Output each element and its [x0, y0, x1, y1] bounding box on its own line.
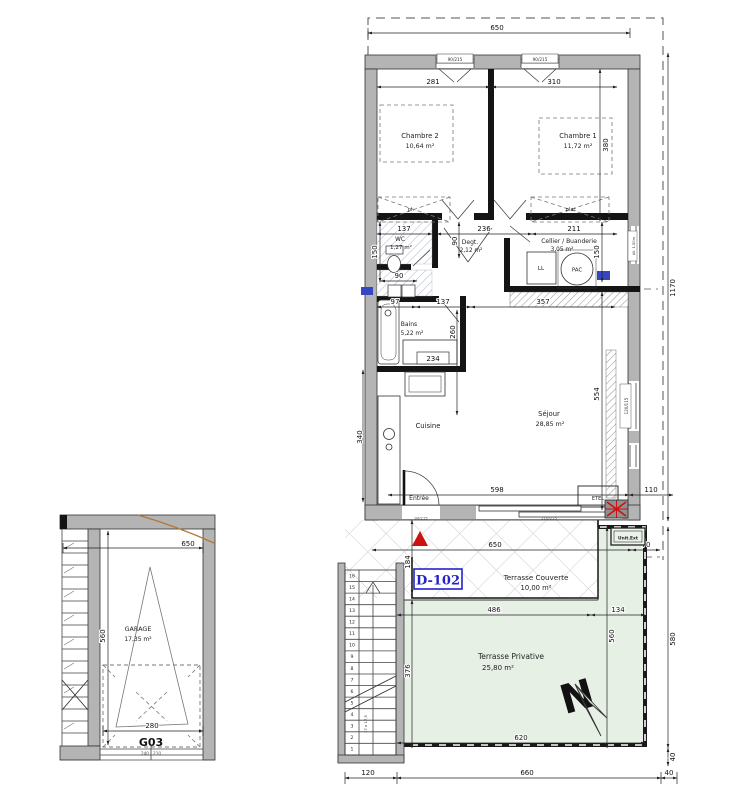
dim-tp-wa: 486: [487, 606, 501, 614]
main-stairs: 16 15 14 13 12 11 10 9 8 7 6 5 4 3 2 1 1…: [338, 563, 404, 763]
stair-step: 4: [351, 712, 354, 718]
label-etel: ETEL: [592, 496, 604, 502]
door-swing-chambre2: [442, 200, 474, 219]
dim-ch2-w: 281: [426, 78, 439, 86]
stair-step: 6: [351, 689, 354, 695]
room-label-bains: Bains: [401, 321, 417, 328]
dim-tp-bottom: 620: [514, 734, 527, 742]
room-area-wc: 1,27 m²: [390, 244, 412, 251]
unit-id-badge: D-102: [414, 569, 462, 589]
dim-vanity: 234: [426, 355, 440, 363]
garage-id-label: G03: [139, 736, 163, 749]
label-cellier-window: All. 1.50m: [632, 236, 636, 255]
dim-cuisine-h: 340: [356, 430, 364, 443]
stair-step: 3: [351, 724, 354, 730]
dim-hall-w: 357: [536, 298, 549, 306]
stair-step: 2: [351, 735, 354, 741]
door-swing-chambre1: [494, 200, 526, 219]
dim-tc-h: 184: [404, 555, 412, 569]
room-area-chambre2: 10,64 m²: [406, 143, 435, 150]
label-garage-door-size: 240 | 210: [141, 751, 161, 756]
dim-niche-w: 90: [395, 272, 404, 280]
stair-step: 16: [349, 574, 355, 580]
dim-top: 650: [490, 24, 503, 32]
label-window-chambre2: 90/215: [448, 57, 463, 62]
garage-ext-stairs: [62, 529, 88, 746]
drain-marker: [605, 500, 628, 518]
stair-step: 13: [349, 608, 355, 614]
unit-id-label: D-102: [416, 574, 460, 589]
room-label-sejour: Séjour: [538, 410, 560, 418]
stair-step: 11: [349, 631, 355, 637]
room-area-cellier: 3,05 m²: [551, 246, 574, 253]
dim-wc-h: 150: [371, 245, 379, 258]
washbasin: [388, 285, 401, 297]
room-area-chambre1: 11,72 m²: [564, 143, 593, 150]
dim-cellier-w: 211: [567, 225, 580, 233]
label-sejour-window: 120/115: [624, 397, 629, 414]
garage-door-swing: [116, 567, 188, 727]
room-area-garage: 17,35 m²: [124, 636, 152, 643]
room-label-terrasse-couverte: Terrasse Couverte: [503, 573, 569, 582]
dim-garage-door-w: 280: [145, 722, 158, 730]
stair-step: 7: [351, 677, 354, 683]
washbasin: [402, 285, 415, 297]
label-entry-door-size: 90/215: [414, 516, 428, 521]
dim-col-w: 97: [391, 298, 400, 306]
dim-ch1-h: 380: [602, 138, 610, 151]
stair-step: 8: [351, 666, 354, 672]
room-label-degagement: Degt.: [462, 239, 478, 246]
room-label-cuisine: Cuisine: [416, 422, 441, 430]
bathtub: [378, 300, 399, 364]
stair-step: 1: [351, 747, 354, 753]
label-closet-left: pl.: [408, 207, 415, 213]
stair-step: 5: [351, 701, 354, 707]
room-label-chambre2: Chambre 2: [401, 132, 438, 140]
room-label-garage: GARAGE: [125, 625, 152, 633]
label-washer: LL: [538, 266, 545, 272]
room-area-bains: 5,22 m²: [401, 330, 424, 337]
exterior-unit-label: Unit.Ext: [618, 536, 638, 542]
kitchen-counter: [378, 396, 400, 504]
stair-note: 17 x 17,5: [363, 714, 368, 733]
room-area-terrasse-couverte: 10,00 m²: [521, 584, 552, 592]
garage-id-badge: G03: [139, 736, 163, 749]
label-window-chambre1: 90/215: [533, 57, 548, 62]
stair-step: 15: [349, 585, 355, 591]
door-tag: [597, 271, 610, 280]
dim-sejour-h: 554: [593, 387, 601, 401]
vanity-dim-box: 234: [417, 352, 449, 364]
label-bay-window-size: 210/215: [541, 516, 557, 521]
room-area-degagement: 2,12 m²: [460, 247, 483, 254]
dim-bot-right: 40: [665, 769, 674, 777]
parking-space: [103, 665, 200, 747]
stair-step: 12: [349, 620, 355, 626]
dim-right-h: 580: [669, 632, 677, 645]
dim-tp-inner: 376: [404, 664, 412, 678]
dim-bot-main: 660: [520, 769, 533, 777]
dim-tp-h: 560: [608, 629, 616, 642]
room-label-cellier: Cellier / Buanderie: [541, 238, 597, 245]
stair-step: 14: [349, 597, 355, 603]
dim-degt-h: 90: [451, 237, 459, 246]
dim-bains-w: 137: [436, 298, 449, 306]
stair-step: 9: [351, 654, 354, 660]
room-label-entree: Entrée: [409, 495, 429, 502]
room-label-wc: WC: [395, 237, 405, 243]
dim-offset-right: 110: [644, 486, 657, 494]
floor-plan-page: 16 15 14 13 12 11 10 9 8 7 6 5 4 3 2 1 1…: [0, 0, 750, 800]
dim-garage-h: 560: [99, 629, 107, 642]
hatch-zones: [377, 222, 628, 498]
dim-height-right: 1170: [669, 279, 677, 297]
dim-right-s: 40: [669, 753, 677, 762]
label-closet-right: plac: [566, 207, 577, 213]
label-heat-pump: PAC: [572, 268, 582, 274]
dim-garage-top: 650: [181, 540, 194, 548]
room-area-sejour: 28,85 m²: [536, 421, 565, 428]
dim-cellier-h: 150: [593, 245, 601, 258]
door-tag: [361, 287, 373, 295]
dim-sejour-w: 598: [490, 486, 503, 494]
dim-wc-w: 137: [397, 225, 410, 233]
dim-bains-h: 260: [449, 325, 457, 338]
dim-bot-stairs: 120: [361, 769, 374, 777]
floor-plan-svg: 16 15 14 13 12 11 10 9 8 7 6 5 4 3 2 1 1…: [0, 0, 750, 800]
exterior-unit-box: Unit.Ext: [611, 528, 645, 545]
room-label-terrasse-privative: Terrasse Privative: [477, 652, 544, 661]
dim-tc-w: 650: [488, 541, 501, 549]
room-label-chambre1: Chambre 1: [559, 132, 596, 140]
dim-ch1-w: 310: [547, 78, 560, 86]
dim-tp-wb: 134: [611, 606, 625, 614]
room-area-terrasse-privative: 25,80 m²: [482, 664, 514, 672]
terrasse-couverte-tiles: [345, 520, 598, 598]
stair-step: 10: [349, 643, 355, 649]
dim-degt-w: 236: [477, 225, 491, 233]
kitchen-appliance: [405, 372, 445, 396]
